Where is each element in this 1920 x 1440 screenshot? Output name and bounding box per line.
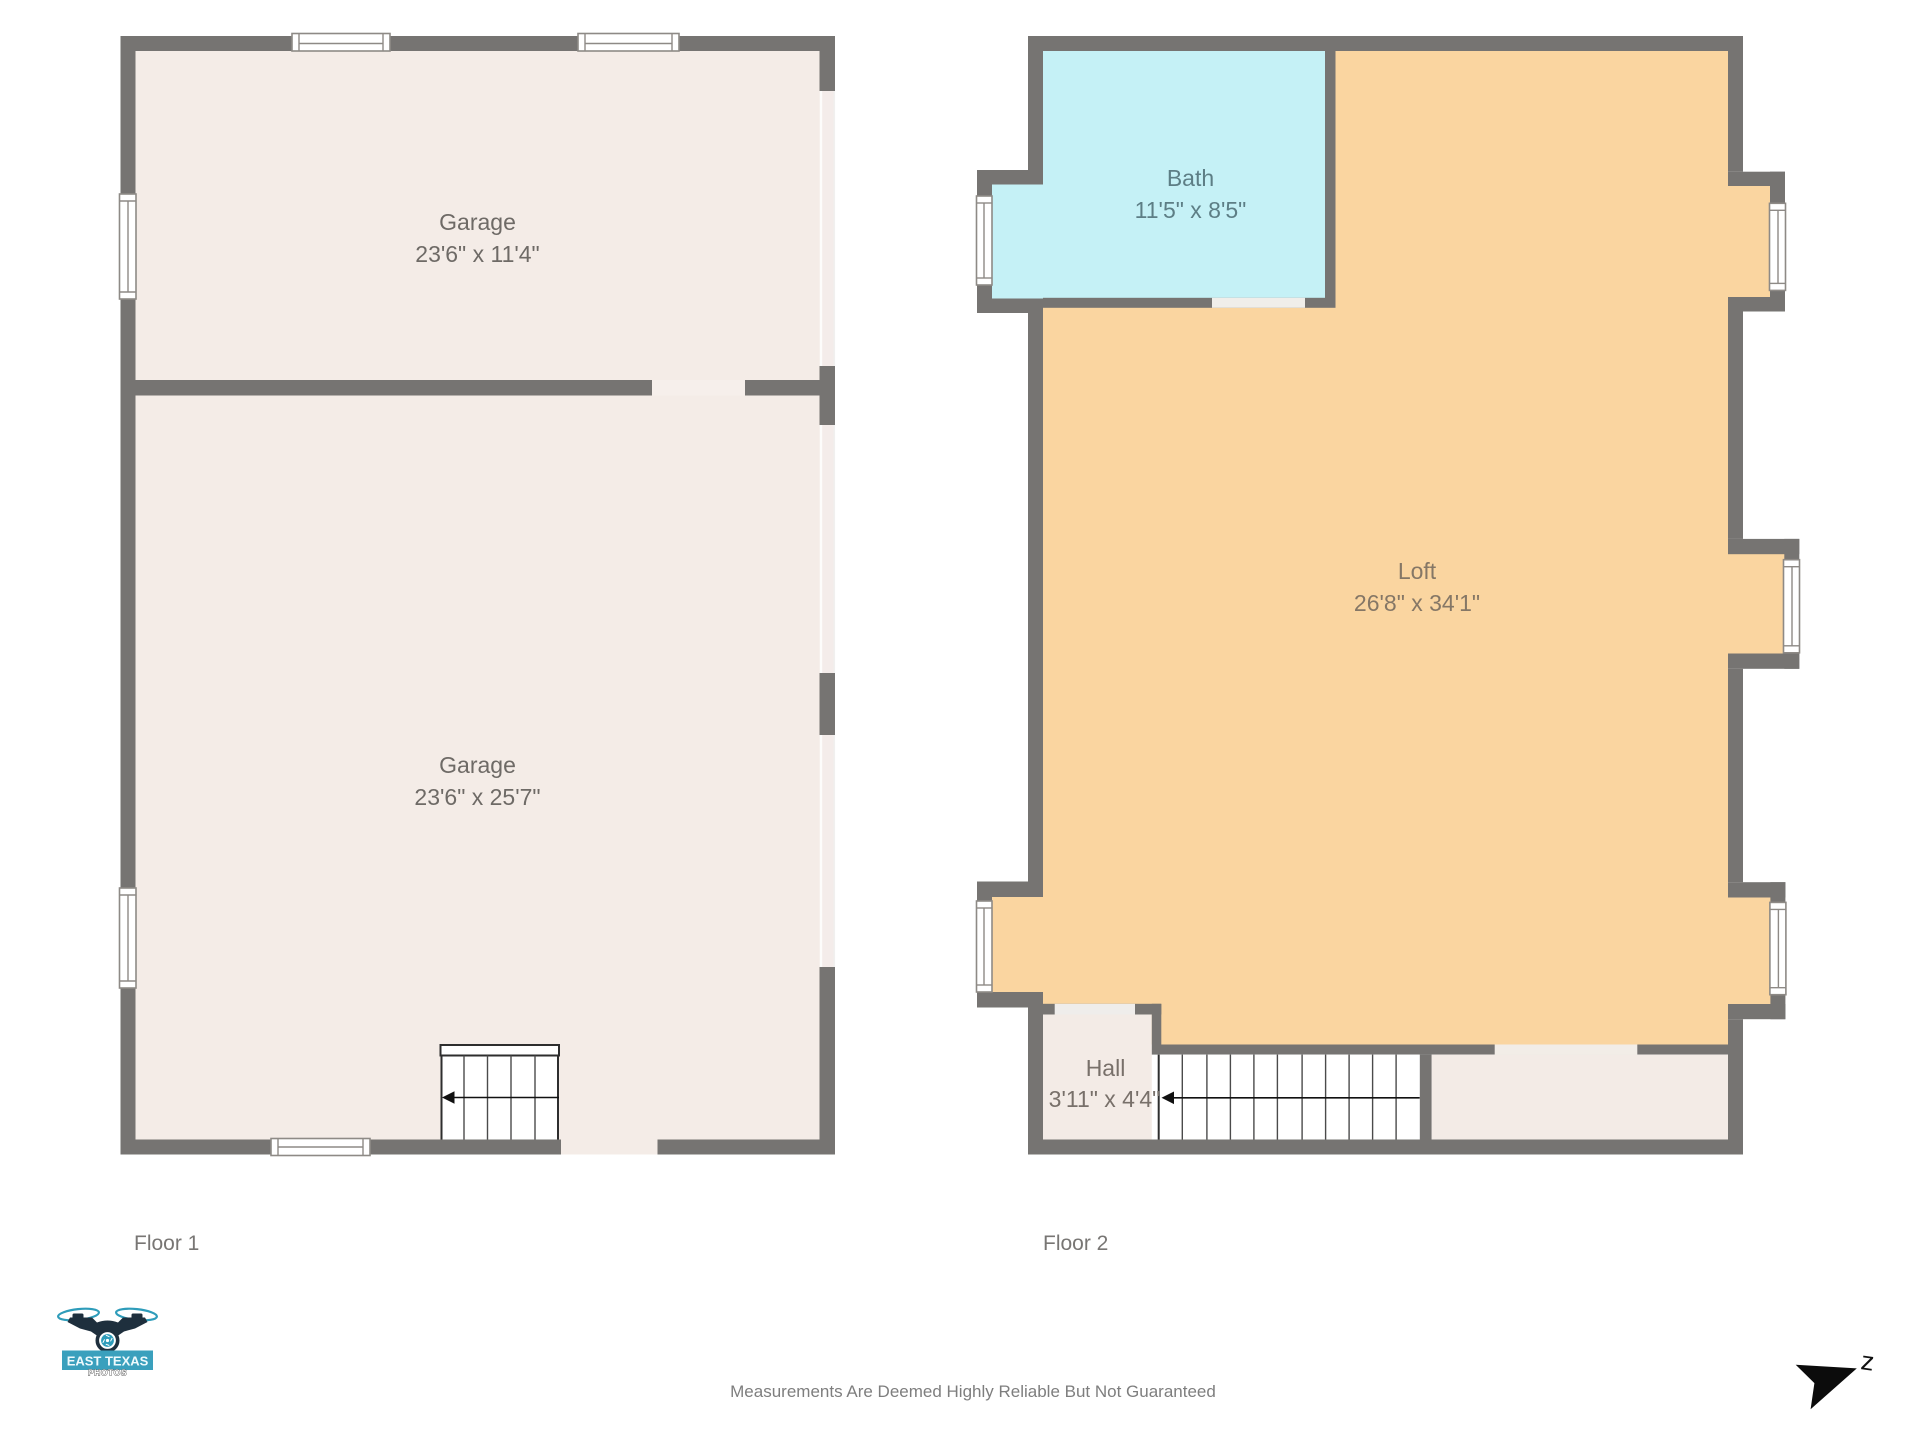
svg-text:11'5" x 8'5": 11'5" x 8'5"	[1135, 197, 1247, 223]
svg-text:23'6" x 11'4": 23'6" x 11'4"	[415, 241, 539, 267]
svg-text:EAST TEXAS: EAST TEXAS	[67, 1354, 149, 1369]
svg-text:3'11" x 4'4": 3'11" x 4'4"	[1049, 1086, 1161, 1112]
svg-text:PHOTOS: PHOTOS	[88, 1368, 127, 1378]
svg-text:Hall: Hall	[1086, 1055, 1126, 1081]
svg-text:26'8" x 34'1": 26'8" x 34'1"	[1354, 590, 1480, 616]
svg-text:Garage: Garage	[439, 209, 516, 235]
svg-text:Bath: Bath	[1167, 165, 1214, 191]
svg-text:Floor 1: Floor 1	[134, 1232, 199, 1255]
svg-text:23'6" x 25'7": 23'6" x 25'7"	[414, 784, 540, 810]
svg-text:Loft: Loft	[1398, 558, 1437, 584]
svg-text:Floor 2: Floor 2	[1043, 1232, 1108, 1255]
svg-text:Garage: Garage	[439, 752, 516, 778]
svg-text:Measurements Are Deemed Highly: Measurements Are Deemed Highly Reliable …	[730, 1382, 1216, 1401]
